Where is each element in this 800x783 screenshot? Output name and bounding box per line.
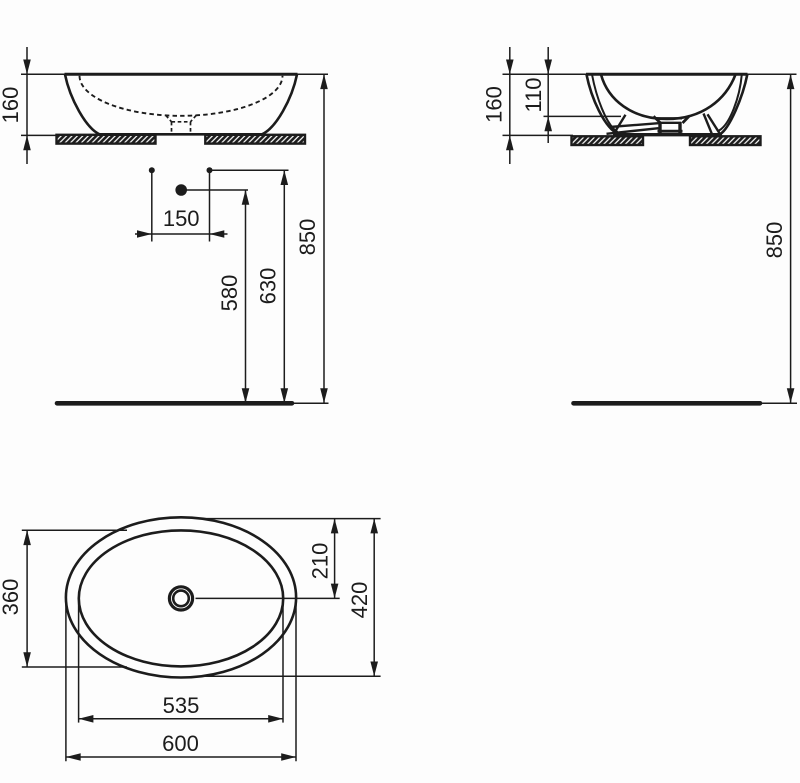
svg-text:535: 535 (163, 693, 200, 718)
svg-text:580: 580 (217, 275, 242, 312)
svg-text:160: 160 (481, 86, 506, 123)
svg-text:360: 360 (0, 579, 23, 616)
svg-text:160: 160 (0, 87, 23, 124)
svg-text:110: 110 (521, 77, 546, 112)
svg-text:850: 850 (295, 219, 320, 256)
svg-text:210: 210 (308, 543, 333, 580)
svg-text:600: 600 (162, 731, 199, 756)
svg-text:150: 150 (163, 206, 200, 231)
svg-text:630: 630 (256, 268, 281, 305)
svg-text:420: 420 (347, 582, 372, 619)
svg-text:850: 850 (762, 222, 787, 259)
